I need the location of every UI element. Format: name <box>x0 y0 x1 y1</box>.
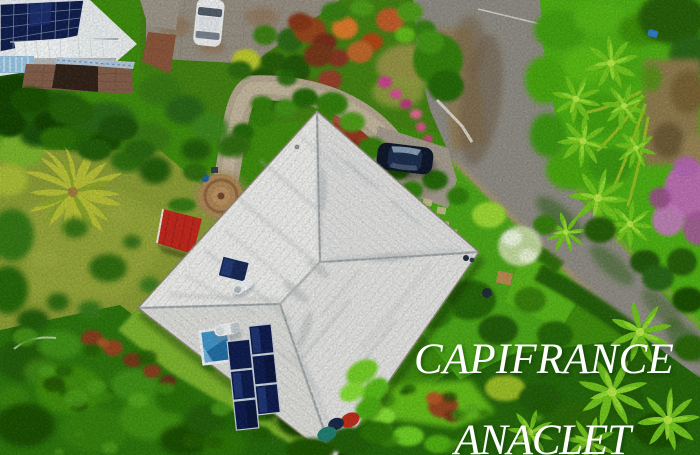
svg-text:CAPIFRANCE: CAPIFRANCE <box>414 336 674 383</box>
svg-text:ANACLET: ANACLET <box>451 417 634 455</box>
